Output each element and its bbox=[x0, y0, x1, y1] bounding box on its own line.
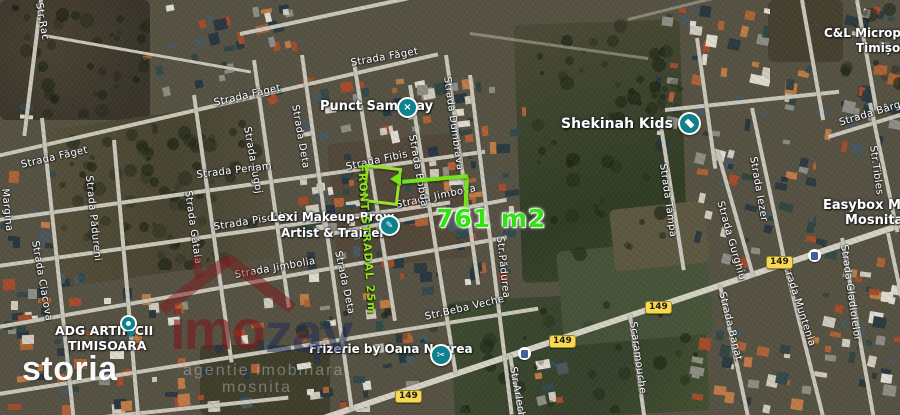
map-building bbox=[880, 368, 891, 375]
poi-label-adg-1[interactable]: ADG ARTIFICII bbox=[55, 323, 153, 338]
map-building bbox=[727, 38, 741, 52]
map-building bbox=[715, 333, 723, 341]
map-tree bbox=[841, 67, 850, 76]
map-building bbox=[415, 80, 426, 88]
map-building bbox=[9, 170, 20, 183]
map-building bbox=[869, 288, 879, 295]
bus-glyph bbox=[521, 350, 528, 358]
map-building bbox=[381, 125, 389, 134]
map-tree bbox=[840, 64, 852, 76]
map-building bbox=[251, 323, 264, 329]
sameday-locker-icon[interactable]: × bbox=[397, 97, 418, 118]
map-building bbox=[694, 152, 707, 166]
map-building bbox=[320, 321, 331, 329]
map-building bbox=[220, 16, 230, 26]
map-building bbox=[867, 355, 878, 367]
mortarboard-glyph bbox=[685, 119, 695, 129]
map-building bbox=[471, 160, 476, 168]
map-tree bbox=[893, 77, 900, 90]
map-building bbox=[117, 376, 124, 386]
map-building bbox=[402, 332, 411, 341]
map-tree bbox=[401, 332, 409, 340]
bus-stop-icon[interactable] bbox=[808, 249, 821, 262]
map-building bbox=[148, 302, 159, 313]
map-building bbox=[178, 378, 185, 390]
map-building bbox=[296, 332, 307, 342]
map-building bbox=[785, 104, 795, 111]
map-building bbox=[888, 296, 896, 304]
map-building bbox=[680, 14, 691, 25]
map-building bbox=[825, 354, 837, 361]
map-building bbox=[692, 7, 700, 13]
route-shield-149: 149 bbox=[645, 301, 672, 314]
map-building bbox=[41, 221, 51, 228]
map-building bbox=[761, 109, 770, 116]
map-building bbox=[880, 373, 892, 384]
trail-path bbox=[628, 0, 755, 21]
poi-label-lexi-1[interactable]: Lexi Makeup-Brow bbox=[270, 210, 394, 224]
map-building bbox=[724, 392, 734, 404]
map-building bbox=[855, 276, 863, 282]
map-building bbox=[889, 359, 896, 364]
map-building bbox=[786, 79, 793, 91]
map-building bbox=[720, 67, 727, 77]
map-building bbox=[784, 354, 790, 359]
scissors-icon[interactable]: ✂ bbox=[430, 344, 452, 366]
road-segment bbox=[886, 233, 900, 412]
map-building bbox=[17, 292, 31, 298]
map-building bbox=[376, 321, 384, 331]
map-building bbox=[790, 398, 804, 410]
map-building bbox=[865, 340, 872, 347]
map-building bbox=[465, 132, 474, 143]
map-building bbox=[340, 401, 348, 406]
map-tree bbox=[883, 3, 896, 16]
map-building bbox=[748, 379, 760, 388]
map-building bbox=[829, 331, 841, 338]
map-building bbox=[17, 330, 30, 338]
map-building bbox=[490, 142, 496, 154]
map-building bbox=[178, 393, 191, 406]
route-shield-149: 149 bbox=[549, 335, 576, 348]
map-building bbox=[303, 300, 310, 308]
map-building bbox=[285, 9, 294, 18]
map-building bbox=[779, 344, 790, 355]
map-building bbox=[400, 272, 404, 280]
pin-icon[interactable] bbox=[120, 315, 137, 332]
map-building bbox=[814, 370, 827, 377]
map-building bbox=[385, 126, 394, 134]
map-building bbox=[326, 319, 335, 326]
map-building bbox=[20, 339, 33, 351]
map-building bbox=[148, 310, 156, 318]
map-building bbox=[888, 16, 896, 21]
map-building bbox=[422, 116, 430, 124]
map-building bbox=[40, 242, 54, 249]
map-tree bbox=[381, 312, 388, 319]
map-building bbox=[841, 141, 848, 152]
street-label-banat: Strada Banat bbox=[716, 291, 744, 362]
map-building bbox=[728, 41, 734, 47]
map-building bbox=[166, 5, 175, 12]
map-building bbox=[213, 18, 228, 32]
map-building bbox=[383, 363, 393, 369]
street-label-gladiolelor: Strada Gladiolelor bbox=[838, 244, 862, 342]
bus-stop-icon[interactable] bbox=[518, 347, 531, 360]
street-label-margina: Margina bbox=[0, 188, 15, 232]
map-building bbox=[234, 330, 246, 337]
street-label-muntenia: Strada Muntenia bbox=[780, 260, 818, 348]
map-building bbox=[340, 81, 353, 93]
map-building bbox=[858, 86, 866, 96]
map-building bbox=[823, 293, 830, 298]
map-building bbox=[379, 128, 387, 136]
map-building bbox=[852, 143, 864, 154]
map-building bbox=[880, 292, 893, 303]
map-building bbox=[727, 150, 735, 159]
map-building bbox=[744, 118, 751, 130]
map-building bbox=[840, 102, 851, 109]
map-building bbox=[178, 301, 190, 311]
map-building bbox=[162, 87, 171, 97]
map-building bbox=[8, 329, 17, 335]
map-building bbox=[762, 405, 771, 414]
map-building bbox=[876, 257, 886, 267]
map-building bbox=[786, 79, 796, 91]
map-building bbox=[862, 8, 871, 19]
map-building bbox=[419, 271, 431, 282]
route-shield-149: 149 bbox=[395, 390, 422, 403]
poi-label-easybox-1[interactable]: Easybox Magno bbox=[823, 198, 900, 213]
map-building bbox=[38, 230, 51, 241]
map-building bbox=[422, 287, 435, 296]
map-building bbox=[727, 163, 733, 169]
map-building bbox=[464, 278, 471, 285]
poi-label-shekinah-kids[interactable]: Shekinah Kids bbox=[561, 116, 673, 132]
map-building bbox=[168, 317, 181, 326]
map-building bbox=[782, 140, 789, 145]
map-building bbox=[113, 399, 127, 410]
map-building bbox=[193, 37, 205, 46]
map-building bbox=[235, 40, 245, 49]
map-building bbox=[728, 174, 739, 186]
map-building bbox=[2, 279, 15, 291]
map-building bbox=[763, 224, 772, 233]
terrain-patch bbox=[609, 200, 710, 272]
map-building bbox=[181, 398, 192, 404]
map-building bbox=[785, 171, 797, 180]
map-building bbox=[870, 291, 883, 300]
map-tree bbox=[862, 10, 868, 16]
map-tree bbox=[841, 61, 853, 73]
map-building bbox=[505, 189, 520, 197]
map-building bbox=[8, 403, 21, 410]
map-building bbox=[842, 99, 856, 113]
map-building bbox=[715, 331, 724, 339]
map-tree bbox=[329, 316, 333, 320]
map-building bbox=[756, 346, 769, 357]
bus-glyph bbox=[811, 252, 818, 260]
map-building bbox=[155, 65, 164, 76]
map-building bbox=[816, 238, 826, 246]
map-building bbox=[860, 271, 872, 278]
map-building bbox=[104, 298, 111, 304]
map-building bbox=[399, 356, 413, 365]
map-building bbox=[806, 235, 816, 243]
map-building bbox=[285, 40, 293, 48]
map-building bbox=[766, 374, 779, 388]
map-building bbox=[362, 87, 370, 97]
map-building bbox=[353, 376, 365, 384]
map-building bbox=[291, 42, 297, 52]
map-building bbox=[761, 76, 770, 86]
map-building bbox=[834, 304, 844, 313]
map-building bbox=[320, 306, 331, 312]
map-building bbox=[174, 302, 184, 315]
map-building bbox=[264, 11, 272, 22]
map-building bbox=[775, 182, 788, 191]
map-building bbox=[751, 247, 760, 255]
map-building bbox=[340, 124, 351, 133]
terrain-patch bbox=[0, 0, 150, 120]
map-building bbox=[489, 87, 496, 93]
map-building bbox=[121, 400, 132, 411]
map-building bbox=[28, 289, 37, 299]
map-building bbox=[413, 263, 426, 273]
map-building bbox=[713, 386, 726, 396]
map-building bbox=[198, 20, 207, 30]
map-building bbox=[825, 346, 832, 353]
map-building bbox=[752, 61, 760, 67]
map-building bbox=[17, 326, 27, 332]
map-building bbox=[300, 294, 309, 305]
map-building bbox=[272, 42, 281, 53]
map-building bbox=[775, 371, 789, 385]
map-tree bbox=[881, 74, 888, 81]
map-building bbox=[279, 4, 290, 13]
map-building bbox=[702, 40, 711, 52]
road-segment bbox=[240, 0, 495, 36]
map-building bbox=[876, 335, 887, 345]
map-building bbox=[362, 380, 371, 390]
map-building bbox=[491, 177, 498, 182]
map-building bbox=[166, 43, 177, 50]
map-building bbox=[689, 25, 702, 35]
map-building bbox=[778, 201, 793, 212]
map-building bbox=[872, 373, 878, 380]
road-segment bbox=[855, 0, 878, 111]
map-building bbox=[268, 37, 276, 48]
map-building bbox=[700, 5, 713, 17]
map-building bbox=[806, 222, 815, 234]
map-building bbox=[806, 177, 816, 187]
map-building bbox=[319, 132, 331, 141]
map-building bbox=[502, 172, 510, 177]
map-building bbox=[13, 237, 21, 248]
map-building bbox=[798, 70, 810, 78]
map-building bbox=[54, 339, 62, 345]
map-building bbox=[705, 211, 714, 220]
route-shield-149: 149 bbox=[766, 256, 793, 269]
map-building bbox=[261, 9, 272, 15]
map-building bbox=[873, 6, 881, 14]
map-building bbox=[22, 335, 34, 344]
map-building bbox=[799, 166, 809, 174]
map-building bbox=[224, 45, 236, 51]
map-building bbox=[10, 301, 17, 310]
map-building bbox=[689, 21, 696, 28]
map-building bbox=[263, 298, 273, 309]
map-building bbox=[252, 7, 259, 17]
poi-label-microplant-1[interactable]: C&L Microplant bbox=[824, 26, 900, 40]
map-building bbox=[744, 10, 755, 20]
map-building bbox=[761, 66, 770, 80]
map-building bbox=[499, 183, 507, 190]
map-building bbox=[475, 82, 481, 92]
map-building bbox=[68, 297, 80, 306]
map-canvas[interactable]: Str.Rac Strada Făget Strada Făget Strada… bbox=[0, 0, 900, 415]
map-building bbox=[467, 118, 473, 123]
map-building bbox=[218, 75, 225, 82]
building-block bbox=[236, 0, 298, 72]
map-building bbox=[784, 380, 790, 386]
map-building bbox=[882, 384, 897, 397]
map-building bbox=[873, 64, 887, 75]
map-building bbox=[812, 215, 816, 227]
map-building bbox=[749, 74, 765, 86]
map-tree bbox=[863, 8, 878, 23]
map-building bbox=[392, 87, 398, 93]
poi-label-microplant-2[interactable]: Timișoara bbox=[856, 41, 900, 55]
map-building bbox=[740, 25, 749, 37]
area-label: 761 m2 bbox=[436, 204, 546, 233]
map-building bbox=[812, 162, 816, 170]
map-building bbox=[497, 144, 510, 153]
map-building bbox=[889, 119, 900, 130]
map-building bbox=[208, 32, 221, 46]
school-icon[interactable] bbox=[678, 112, 701, 135]
map-building bbox=[460, 128, 473, 135]
street-label-ciacova: Strada Ciacova bbox=[29, 240, 54, 322]
map-building bbox=[868, 311, 883, 325]
map-building bbox=[479, 262, 487, 272]
map-building bbox=[206, 15, 216, 24]
map-building bbox=[726, 363, 734, 369]
map-building bbox=[801, 386, 811, 395]
map-building bbox=[848, 352, 856, 364]
poi-label-easybox-2[interactable]: Mosnita No bbox=[845, 213, 900, 228]
map-building bbox=[298, 196, 308, 206]
map-building bbox=[363, 388, 369, 398]
map-building bbox=[799, 157, 808, 167]
map-tree bbox=[296, 325, 308, 337]
map-building bbox=[865, 287, 871, 293]
map-building bbox=[12, 313, 23, 321]
map-building bbox=[697, 168, 709, 176]
map-building bbox=[893, 336, 900, 342]
map-building bbox=[481, 126, 488, 137]
map-building bbox=[706, 34, 718, 47]
beauty-icon[interactable]: ✎ bbox=[379, 215, 400, 236]
map-building bbox=[152, 377, 158, 383]
map-building bbox=[194, 79, 204, 89]
map-building bbox=[718, 21, 725, 31]
map-building bbox=[872, 316, 887, 329]
map-building bbox=[887, 73, 900, 86]
map-building bbox=[724, 156, 733, 168]
map-building bbox=[822, 316, 836, 329]
map-building bbox=[743, 356, 752, 367]
map-building bbox=[396, 79, 404, 85]
map-building bbox=[282, 9, 289, 16]
map-building bbox=[781, 176, 789, 182]
map-building bbox=[165, 391, 178, 396]
map-tree bbox=[873, 60, 880, 67]
annotation-arrow-head bbox=[390, 172, 401, 186]
map-building bbox=[878, 11, 885, 20]
map-building bbox=[240, 335, 248, 345]
map-building bbox=[417, 85, 429, 96]
map-building bbox=[842, 339, 851, 348]
map-tree bbox=[891, 65, 900, 75]
map-building bbox=[7, 235, 16, 241]
storia-logo: storia bbox=[22, 350, 118, 389]
